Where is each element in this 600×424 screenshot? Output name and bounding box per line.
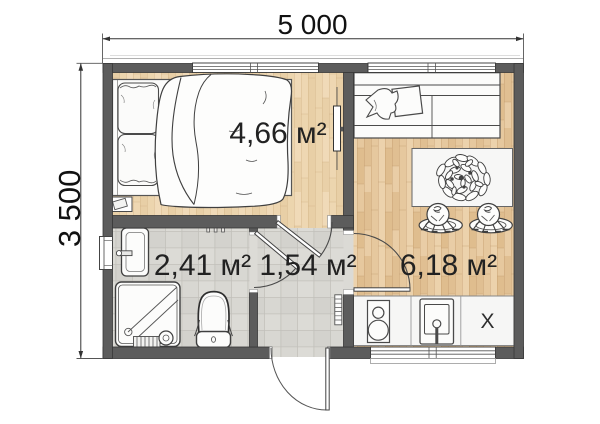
svg-text:6,18 м²: 6,18 м² [400,249,497,282]
svg-text:5 000: 5 000 [277,9,347,40]
svg-text:X: X [480,310,494,333]
svg-text:1,54 м²: 1,54 м² [259,249,356,282]
svg-text:4,66 м²: 4,66 м² [229,117,326,150]
svg-text:3 500: 3 500 [52,170,87,248]
svg-text:2,41 м²: 2,41 м² [154,249,251,282]
